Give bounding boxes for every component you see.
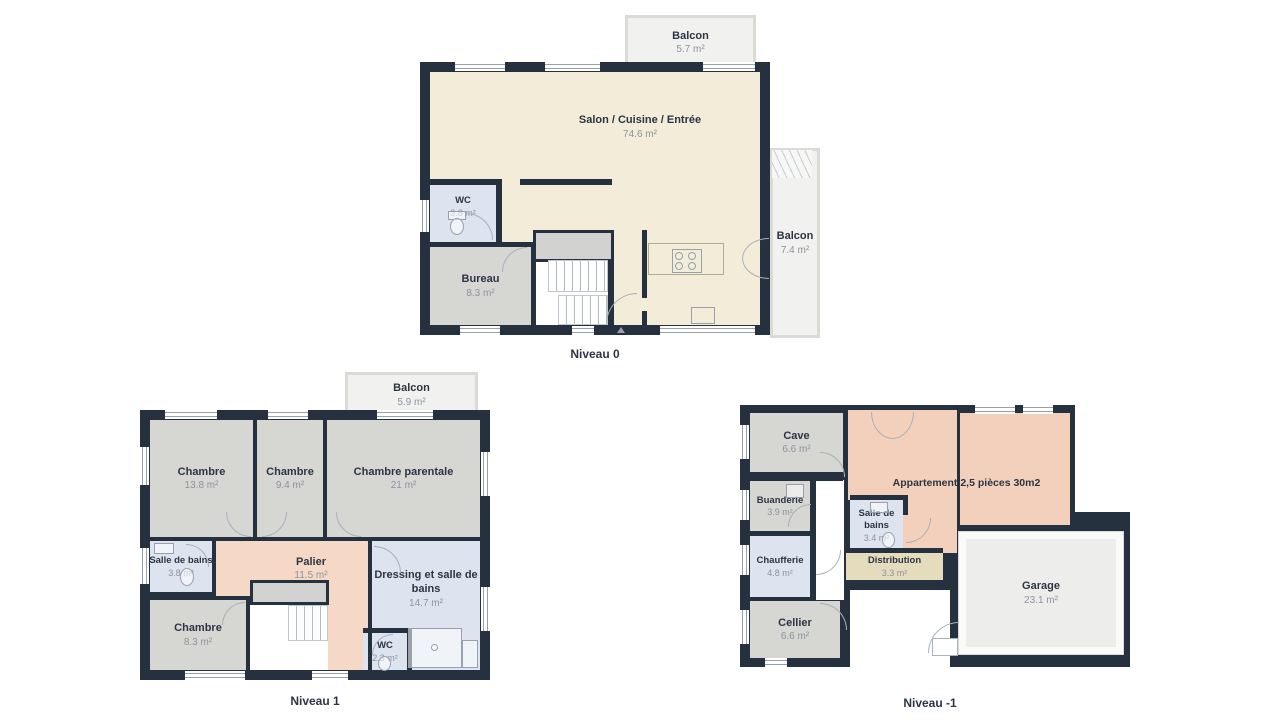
apartment-label: Appartement 2,5 pièces 30m2 <box>864 477 1069 489</box>
window <box>165 410 217 419</box>
interior-wall <box>253 420 257 537</box>
window <box>1023 405 1053 414</box>
interior-wall <box>212 541 216 592</box>
toilet-fixture <box>882 532 895 548</box>
window <box>185 671 245 680</box>
room-area: 6.6 m² <box>781 631 809 642</box>
room-area: 21 m² <box>391 480 417 491</box>
interior-wall <box>150 537 480 541</box>
sink-fixture <box>154 543 174 554</box>
room-label: Balcon <box>672 30 709 44</box>
room-label: Balcon <box>393 382 430 396</box>
room-label: Chambre <box>174 622 222 636</box>
level-label-niveau1: Niveau 1 <box>140 694 490 708</box>
room-garage: Garage 23.1 m² <box>958 531 1124 655</box>
room-label: Salon / Cuisine / Entrée <box>579 114 701 128</box>
toilet-fixture <box>378 656 391 671</box>
room-area: 13.8 m² <box>185 480 219 491</box>
sink-fixture <box>870 502 888 513</box>
window <box>455 62 505 71</box>
interior-wall <box>430 179 496 185</box>
stair-treads <box>288 605 328 641</box>
level-label-niveau-minus1: Niveau -1 <box>765 696 1095 710</box>
floorplan-niveau-0: Balcon 5.7 m² Balcon 7.4 m² Salon / Cuis… <box>420 15 820 365</box>
room-label: Chambre <box>266 466 314 480</box>
stair-landing <box>533 230 614 262</box>
window <box>140 447 149 485</box>
stair-treads <box>548 260 608 292</box>
room-area: 9.4 m² <box>276 480 304 491</box>
room-area: 74.6 m² <box>623 129 657 140</box>
window <box>312 671 348 680</box>
room-label: Chambre parentale <box>354 466 454 480</box>
kitchen-cabinet <box>691 307 715 324</box>
room-label: Balcon <box>777 230 814 244</box>
window <box>975 405 1015 414</box>
level-label-niveau0: Niveau 0 <box>420 347 770 361</box>
interior-wall <box>810 481 816 597</box>
exterior-stair-hatch <box>772 150 812 178</box>
window <box>703 62 755 71</box>
stove-icon <box>672 249 702 273</box>
interior-wall <box>750 531 810 536</box>
window <box>481 452 490 496</box>
window <box>660 326 755 335</box>
room-distribution: Distribution 3.3 m² <box>846 553 943 580</box>
interior-wall <box>850 495 903 500</box>
washer-fixture <box>786 484 804 498</box>
room-label: WC <box>455 195 471 207</box>
corridor <box>816 480 844 600</box>
room-label: Chaufferie <box>757 555 804 567</box>
window <box>740 610 749 644</box>
window <box>740 425 749 459</box>
interior-wall <box>642 311 647 325</box>
stair-landing <box>250 580 329 605</box>
room-appartement-b <box>960 413 1070 525</box>
interior-wall <box>846 548 943 553</box>
window <box>268 410 308 419</box>
room-area: 23.1 m² <box>1024 595 1058 606</box>
interior-wall <box>150 596 246 600</box>
interior-wall <box>496 179 502 242</box>
shower-drain <box>431 644 438 651</box>
room-area: 3.3 m² <box>882 568 908 578</box>
window <box>481 587 490 631</box>
floorplan-niveau-1: Balcon 5.9 m² Chambre 13.8 m² Chambre 9.… <box>140 372 500 708</box>
toilet-fixture <box>450 218 464 235</box>
room-chaufferie: Chaufferie 4.8 m² <box>750 536 810 597</box>
floorplan-niveau-minus1: Cave 6.6 m² Buanderie 3.9 m² Chaufferie … <box>740 400 1135 720</box>
room-area: 14.7 m² <box>409 598 443 609</box>
window <box>460 326 500 335</box>
room-area: 5.9 m² <box>397 397 425 408</box>
window <box>545 62 600 71</box>
room-area: 8.3 m² <box>184 637 212 648</box>
room-label: Chambre <box>178 466 226 480</box>
room-area: 3.9 m² <box>767 507 793 517</box>
window <box>765 658 787 667</box>
room-label: Cellier <box>778 617 812 631</box>
interior-wall <box>642 230 647 298</box>
sink-fixture <box>462 640 478 668</box>
interior-wall <box>750 597 810 601</box>
room-label: Bureau <box>462 273 500 287</box>
stair-treads <box>558 295 608 325</box>
interior-wall <box>843 413 848 472</box>
interior-wall <box>323 420 327 537</box>
room-area: 5.7 m² <box>676 44 704 55</box>
room-label: Distribution <box>868 555 921 567</box>
interior-wall <box>903 495 908 515</box>
interior-wall <box>246 596 250 670</box>
window <box>140 548 149 584</box>
room-area: 8.3 m² <box>466 288 494 299</box>
window <box>740 490 749 520</box>
room-label: Cave <box>783 430 809 444</box>
toilet-fixture <box>180 568 194 586</box>
garage-door-leaf <box>932 638 958 656</box>
interior-wall <box>363 628 407 633</box>
interior-wall <box>520 179 612 185</box>
window <box>740 545 749 575</box>
window <box>377 410 433 419</box>
room-palier-strip <box>328 596 368 670</box>
room-label: Dressing et salle de bains <box>374 569 478 597</box>
room-area: 7.4 m² <box>781 245 809 256</box>
room-label: Palier <box>296 556 326 570</box>
interior-wall <box>430 242 536 247</box>
window <box>420 200 429 232</box>
room-area: 4.8 m² <box>767 568 793 578</box>
entrance-arrow <box>617 327 625 333</box>
room-area: 6.6 m² <box>782 444 810 455</box>
window <box>572 326 594 335</box>
room-label: Garage <box>1022 580 1060 594</box>
